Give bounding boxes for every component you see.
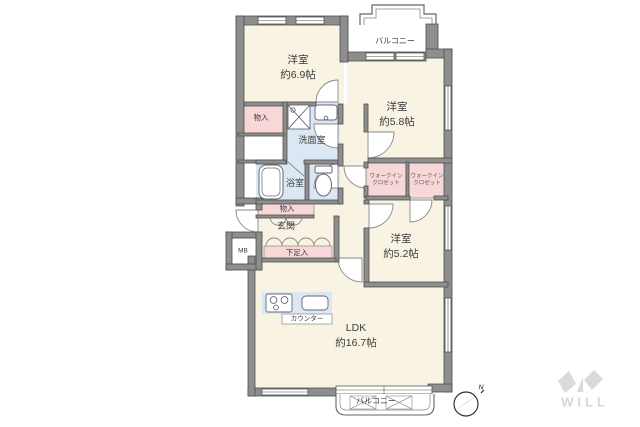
door-entrance: [236, 210, 258, 232]
label-balcony-bottom: バルコニー: [356, 397, 396, 406]
toilet-icon: [315, 166, 332, 196]
floor-plan-drawing: [0, 0, 640, 427]
label-yoshitsu-58: 洋室 約5.8帖: [379, 100, 415, 130]
floor-plan: 洋室 約6.9帖 洋室 約5.8帖 洋室 約5.2帖 LDK 約16.7帖 バル…: [0, 0, 640, 427]
label-gesokuiire: 下足入: [286, 249, 309, 257]
washing-machine-icon: [288, 105, 310, 129]
closet-box: [238, 136, 284, 162]
label-counter: カウンター: [291, 316, 324, 323]
label-yokushitsu: 浴室: [286, 178, 304, 188]
label-balcony-top: バルコニー: [375, 37, 415, 46]
label-monoire-lower: 物入: [280, 205, 295, 213]
label-wic-left: ウォークイン クロゼット: [369, 174, 402, 187]
label-ldk: LDK 約16.7帖: [335, 321, 376, 351]
label-senmenshitsu: 洗面室: [298, 135, 325, 145]
label-will-brand: WILL: [561, 395, 609, 410]
label-monoire-upper: 物入: [254, 114, 269, 122]
will-logo-icon: [558, 370, 603, 393]
label-yoshitsu-52: 洋室 約5.2帖: [383, 232, 419, 262]
bathtub-icon: [259, 165, 283, 199]
bay-window-outline: [360, 5, 436, 25]
label-yoshitsu-69: 洋室 約6.9帖: [280, 53, 316, 83]
label-compass-north: N: [478, 381, 483, 396]
kitchen-sink-icon: [302, 296, 328, 310]
stove-icon: [266, 294, 292, 312]
label-genkan: 玄関: [277, 221, 295, 231]
washbasin-icon: [315, 105, 337, 120]
label-wic-right: ウォークイン クロゼット: [410, 174, 443, 187]
label-mb: MB: [238, 248, 248, 255]
